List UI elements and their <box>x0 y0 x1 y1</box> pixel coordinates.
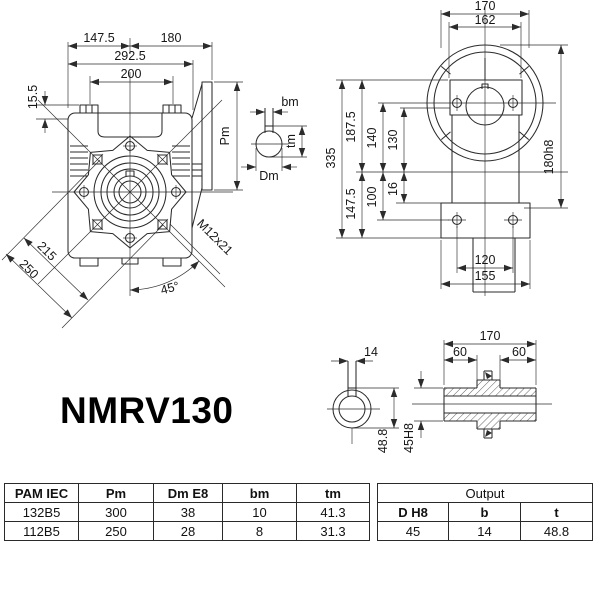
dim-60-left: 60 <box>453 345 467 359</box>
pam-cell: 31.3 <box>297 522 370 541</box>
dim-pm: Pm <box>218 127 232 146</box>
pam-row-132b5: 132B5 300 38 10 41.3 <box>5 503 370 522</box>
dim-215: 215 <box>35 239 60 264</box>
pam-cell: 250 <box>79 522 154 541</box>
output-header-cell: t <box>521 503 593 522</box>
pam-header-cell: tm <box>297 484 370 503</box>
output-cell: 14 <box>449 522 521 541</box>
dim-48-8: 48.8 <box>376 429 390 453</box>
pam-cell: 132B5 <box>5 503 79 522</box>
output-table: Output D H8 b t 45 14 48.8 <box>377 483 593 541</box>
pam-cell: 28 <box>154 522 223 541</box>
pam-header-row: PAM IEC Pm Dm E8 bm tm <box>5 484 370 503</box>
pam-header-cell: PAM IEC <box>5 484 79 503</box>
pam-cell: 300 <box>79 503 154 522</box>
pam-cell: 112B5 <box>5 522 79 541</box>
side-view: 170 162 335 187.5 147.5 140 100 130 16 1… <box>324 0 568 296</box>
dim-130: 130 <box>386 130 400 151</box>
dim-250: 250 <box>17 257 42 282</box>
dim-155: 155 <box>475 269 496 283</box>
pam-cell: 8 <box>223 522 297 541</box>
output-data-row: 45 14 48.8 <box>378 522 593 541</box>
output-header-cell: D H8 <box>378 503 449 522</box>
dim-tm: tm <box>284 134 298 148</box>
output-cell: 45 <box>378 522 449 541</box>
dim-100: 100 <box>365 187 379 208</box>
output-header-cell: b <box>449 503 521 522</box>
dim-140: 140 <box>365 128 379 149</box>
dim-14: 14 <box>364 345 378 359</box>
dim-bm: bm <box>281 95 298 109</box>
dim-147-5: 147.5 <box>83 31 114 45</box>
dim-170-shaft: 170 <box>480 329 501 343</box>
dim-200: 200 <box>121 67 142 81</box>
dim-120: 120 <box>475 253 496 267</box>
thread-callout: M12x21 <box>194 216 235 257</box>
dim-45deg: 45° <box>159 279 181 297</box>
dim-162: 162 <box>475 13 496 27</box>
pam-row-112b5: 112B5 250 28 8 31.3 <box>5 522 370 541</box>
dim-187-5: 187.5 <box>344 111 358 142</box>
output-title-cell: Output <box>378 484 593 503</box>
dim-180: 180 <box>161 31 182 45</box>
dim-292-5: 292.5 <box>114 49 145 63</box>
output-bore-detail: 14 48.8 <box>327 345 399 453</box>
pam-cell: 10 <box>223 503 297 522</box>
dim-45h8: 45H8 <box>402 423 416 453</box>
dim-147-5-side: 147.5 <box>344 188 358 219</box>
output-title-row: Output <box>378 484 593 503</box>
pam-table: PAM IEC Pm Dm E8 bm tm 132B5 300 38 10 4… <box>4 483 370 541</box>
dim-16: 16 <box>386 182 400 196</box>
dim-170-top: 170 <box>475 0 496 13</box>
pam-header-cell: bm <box>223 484 297 503</box>
front-view: 147.5 180 292.5 200 15.5 215 250 M12x21 … <box>2 31 243 328</box>
dim-60-right: 60 <box>512 345 526 359</box>
pam-cell: 41.3 <box>297 503 370 522</box>
output-cell: 48.8 <box>521 522 593 541</box>
pam-header-cell: Dm E8 <box>154 484 223 503</box>
output-header-row: D H8 b t <box>378 503 593 522</box>
hollow-shaft-section: 170 60 60 45H8 <box>402 329 552 453</box>
dim-180h8: 180h8 <box>542 140 556 175</box>
dim-335: 335 <box>324 148 338 169</box>
pam-header-cell: Pm <box>79 484 154 503</box>
input-bore-detail: bm tm Dm <box>241 95 307 183</box>
model-title: NMRV130 <box>60 390 234 432</box>
pam-cell: 38 <box>154 503 223 522</box>
dim-dm: Dm <box>259 169 278 183</box>
drawing-page: 147.5 180 292.5 200 15.5 215 250 M12x21 … <box>0 0 600 600</box>
dim-15-5: 15.5 <box>26 85 40 109</box>
